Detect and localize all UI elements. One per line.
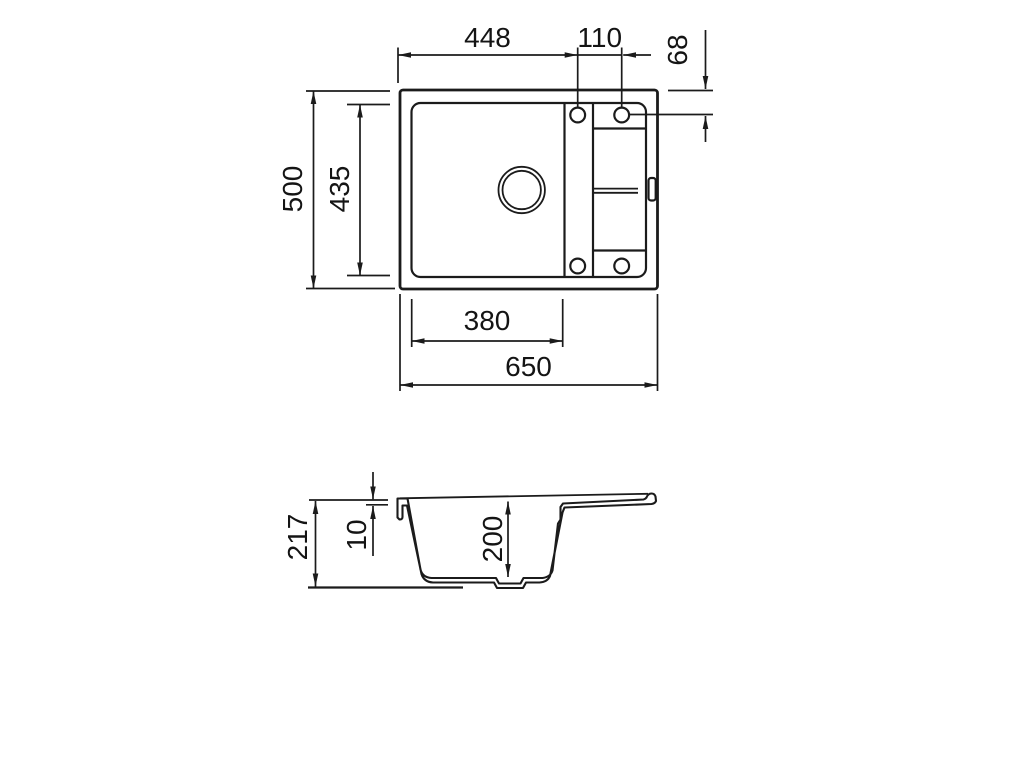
tap-hole-bottom-right <box>614 259 629 274</box>
tap-hole-bottom-left <box>570 259 585 274</box>
dim-inner-front-to-back: 435 <box>324 105 390 276</box>
dim-label-380: 380 <box>464 305 511 336</box>
dim-bowl-depth: 200 <box>477 502 508 578</box>
tap-hole-top-right <box>614 108 629 123</box>
dim-label-435: 435 <box>324 166 355 213</box>
dim-label-110: 110 <box>577 22 622 53</box>
dim-holes-from-left: 448 <box>398 22 578 107</box>
dim-overall-width: 650 <box>400 294 658 391</box>
tap-hole-top-left <box>570 108 585 123</box>
section-profile <box>398 494 657 589</box>
dim-label-448: 448 <box>464 22 511 53</box>
dim-label-68: 68 <box>662 34 693 65</box>
dim-label-217: 217 <box>282 514 313 561</box>
dim-rim-thickness: 10 <box>341 472 388 556</box>
dim-bowl-width: 380 <box>412 299 563 347</box>
dim-label-650: 650 <box>505 351 552 382</box>
overflow-slot <box>649 178 656 201</box>
dim-label-200: 200 <box>477 516 508 563</box>
sink-top-view <box>400 90 658 289</box>
drainer-step-lines <box>593 189 638 193</box>
dim-overall-height: 217 <box>282 500 388 587</box>
sink-dimension-drawing: 448 110 68 500 435 <box>0 0 1024 768</box>
dim-holes-spacing: 110 <box>577 22 651 107</box>
dim-label-10: 10 <box>341 519 372 550</box>
section-back-edge-line <box>400 494 648 499</box>
technical-drawing-page: 448 110 68 500 435 <box>0 0 1024 768</box>
dim-label-500: 500 <box>277 166 308 213</box>
dim-holes-from-top: 68 <box>630 30 713 142</box>
drain-hole <box>499 167 545 213</box>
